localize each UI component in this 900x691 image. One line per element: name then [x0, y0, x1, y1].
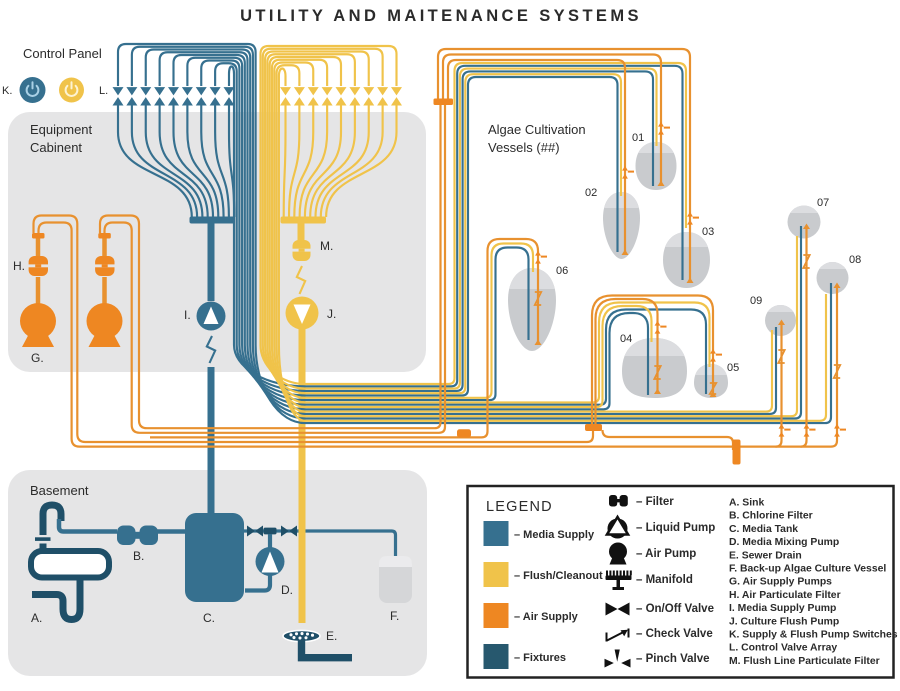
svg-text:– Manifold: – Manifold — [636, 574, 693, 586]
svg-text:– Fixtures: – Fixtures — [514, 652, 566, 664]
svg-text:C.: C. — [203, 611, 215, 625]
svg-text:LEGEND: LEGEND — [486, 499, 553, 515]
svg-text:I.: I. — [184, 308, 191, 322]
svg-text:09: 09 — [750, 295, 762, 307]
svg-text:– Liquid Pump: – Liquid Pump — [636, 522, 715, 534]
svg-text:Control Panel: Control Panel — [23, 46, 102, 61]
svg-text:D. Media Mixing Pump: D. Media Mixing Pump — [729, 537, 839, 548]
svg-text:– Filter: – Filter — [636, 496, 674, 508]
svg-text:03: 03 — [702, 226, 714, 238]
svg-text:Algae Cultivation: Algae Cultivation — [488, 122, 586, 137]
svg-text:04: 04 — [620, 333, 632, 345]
svg-text:A.: A. — [31, 611, 42, 625]
svg-text:F. Back-up Algae Culture Vesse: F. Back-up Algae Culture Vessel — [729, 564, 886, 575]
svg-text:– On/Off Valve: – On/Off Valve — [636, 603, 714, 615]
svg-text:M.: M. — [320, 239, 333, 253]
svg-text:08: 08 — [849, 254, 861, 266]
svg-text:Equipment: Equipment — [30, 122, 93, 137]
svg-text:– Media Supply: – Media Supply — [514, 529, 595, 541]
svg-text:Basement: Basement — [30, 483, 89, 498]
svg-text:– Air Pump: – Air Pump — [636, 548, 696, 560]
svg-text:02: 02 — [585, 187, 597, 199]
svg-text:06: 06 — [556, 265, 568, 277]
svg-text:H.: H. — [13, 259, 25, 273]
svg-text:– Pinch Valve: – Pinch Valve — [636, 653, 710, 665]
svg-text:07: 07 — [817, 197, 829, 209]
svg-text:L.: L. — [99, 85, 108, 97]
svg-text:D.: D. — [281, 583, 293, 597]
svg-text:J. Culture Flush Pump: J. Culture Flush Pump — [729, 616, 839, 627]
svg-text:H. Air Particulate Filter: H. Air Particulate Filter — [729, 590, 841, 601]
svg-text:– Air Supply: – Air Supply — [514, 611, 579, 623]
svg-text:01: 01 — [632, 132, 644, 144]
svg-text:G. Air Supply Pumps: G. Air Supply Pumps — [729, 577, 832, 588]
svg-text:C. Media Tank: C. Media Tank — [729, 524, 798, 535]
svg-text:M. Flush Line Particulate Filt: M. Flush Line Particulate Filter — [729, 656, 880, 667]
svg-text:UTILITY AND MAITENANCE SYSTEMS: UTILITY AND MAITENANCE SYSTEMS — [240, 7, 642, 25]
svg-text:B.: B. — [133, 549, 144, 563]
svg-text:– Check Valve: – Check Valve — [636, 628, 713, 640]
svg-text:I. Media Supply Pump: I. Media Supply Pump — [729, 603, 836, 614]
svg-text:K.: K. — [2, 85, 12, 97]
svg-text:Vessels (##): Vessels (##) — [488, 140, 560, 155]
svg-text:J.: J. — [327, 307, 336, 321]
svg-text:E.: E. — [326, 629, 337, 643]
svg-text:A. Sink: A. Sink — [729, 498, 764, 509]
svg-text:F.: F. — [390, 609, 399, 623]
svg-text:E. Sewer Drain: E. Sewer Drain — [729, 550, 802, 561]
svg-text:05: 05 — [727, 362, 739, 374]
svg-text:G.: G. — [31, 351, 44, 365]
svg-text:B. Chlorine Filter: B. Chlorine Filter — [729, 511, 813, 522]
svg-text:Cabinent: Cabinent — [30, 140, 82, 155]
svg-text:L. Control Valve Array: L. Control Valve Array — [729, 643, 837, 654]
svg-text:K. Supply & Flush Pump Switche: K. Supply & Flush Pump Switches — [729, 630, 898, 641]
svg-text:– Flush/Cleanout: – Flush/Cleanout — [514, 570, 603, 582]
